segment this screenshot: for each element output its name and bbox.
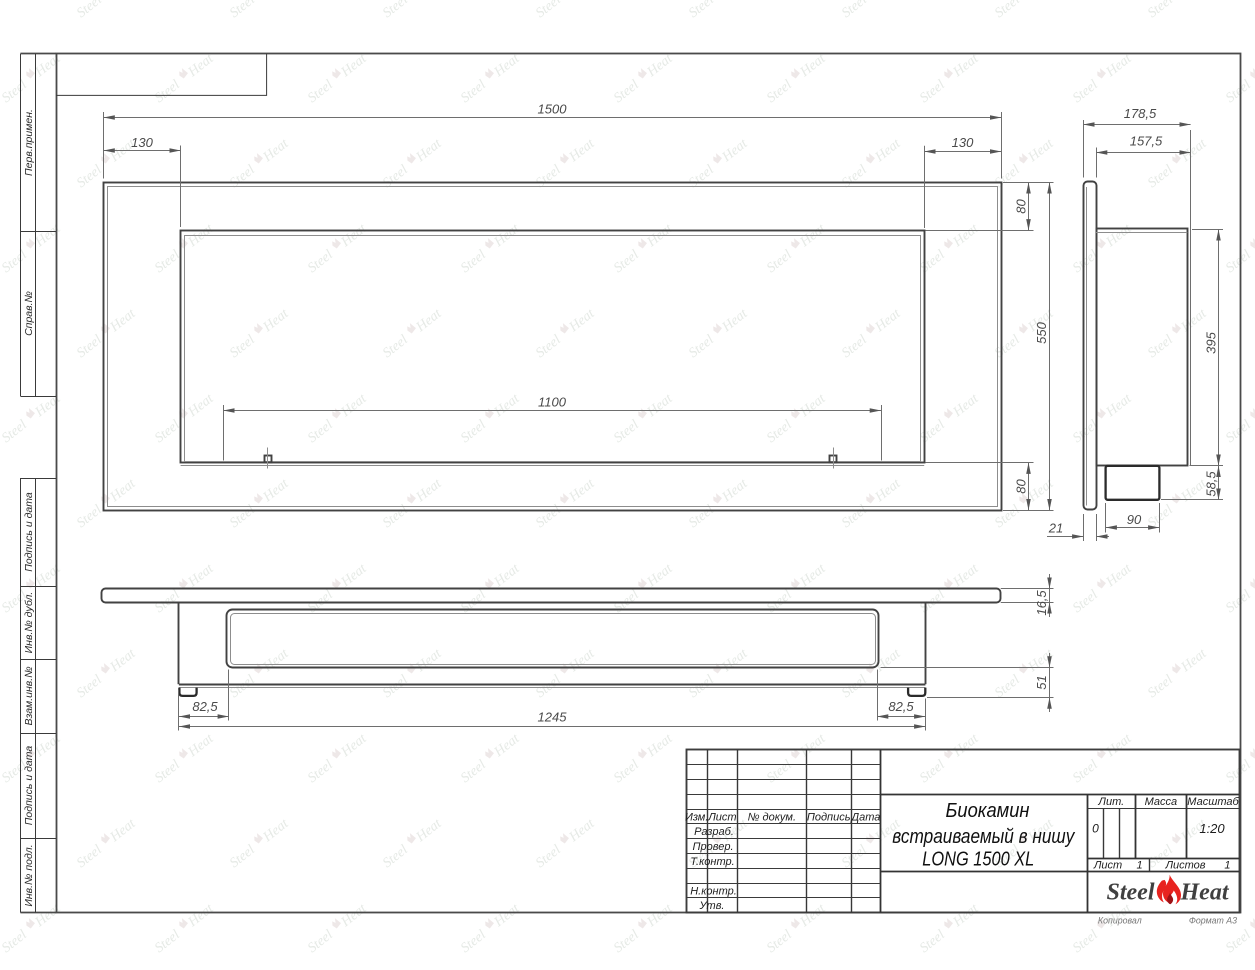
svg-text:21: 21	[1048, 521, 1063, 536]
svg-text:Масса: Масса	[1145, 796, 1178, 808]
svg-text:Масштаб: Масштаб	[1187, 796, 1239, 808]
svg-text:Биокамин: Биокамин	[946, 799, 1030, 822]
svg-text:1245: 1245	[538, 710, 568, 725]
svg-text:Инв.№ подл.: Инв.№ подл.	[23, 844, 35, 906]
svg-text:Копировал: Копировал	[1098, 916, 1142, 926]
svg-text:Изм.: Изм.	[685, 811, 708, 823]
svg-text:Справ.№: Справ.№	[23, 291, 35, 336]
svg-text:Провер.: Провер.	[693, 841, 734, 853]
svg-text:1100: 1100	[538, 394, 567, 409]
svg-text:90: 90	[1127, 512, 1142, 527]
svg-text:16,5: 16,5	[1034, 590, 1049, 616]
svg-text:Подпись и дата: Подпись и дата	[23, 492, 35, 572]
svg-text:Инв.№ дубл.: Инв.№ дубл.	[23, 592, 35, 654]
svg-text:Взам.инв.№: Взам.инв.№	[23, 666, 35, 725]
svg-text:Лист: Лист	[707, 811, 736, 823]
svg-text:550: 550	[1034, 321, 1049, 343]
svg-text:Утв.: Утв.	[699, 900, 725, 912]
svg-text:1500: 1500	[538, 102, 568, 117]
svg-text:Т.контр.: Т.контр.	[690, 856, 734, 868]
svg-text:82,5: 82,5	[888, 699, 914, 714]
svg-text:Лист: Лист	[1093, 860, 1122, 872]
svg-text:1: 1	[1136, 860, 1142, 872]
svg-text:встраиваемый в нишу: встраиваемый в нишу	[892, 825, 1075, 848]
svg-text:130: 130	[131, 135, 153, 150]
svg-text:58,5: 58,5	[1203, 471, 1218, 497]
svg-text:80: 80	[1014, 199, 1029, 214]
svg-text:Лит.: Лит.	[1097, 796, 1124, 808]
svg-text:1: 1	[1224, 860, 1230, 872]
svg-text:Дата: Дата	[849, 811, 880, 823]
svg-text:51: 51	[1034, 675, 1049, 689]
svg-text:Подпись: Подпись	[807, 811, 851, 823]
svg-text:Подпись и дата: Подпись и дата	[23, 746, 35, 826]
svg-text:Steel: Steel	[1107, 880, 1155, 906]
svg-text:Разраб.: Разраб.	[694, 826, 734, 838]
svg-text:№ докум.: № докум.	[748, 811, 796, 823]
svg-text:130: 130	[952, 135, 974, 150]
svg-text:Н.контр.: Н.контр.	[690, 885, 737, 897]
svg-text:LONG 1500 XL: LONG 1500 XL	[922, 847, 1034, 870]
svg-text:Листов: Листов	[1164, 860, 1205, 872]
svg-text:Heat: Heat	[1180, 880, 1230, 906]
svg-text:157,5: 157,5	[1130, 134, 1163, 149]
svg-text:82,5: 82,5	[192, 699, 218, 714]
svg-text:Перв.примен.: Перв.примен.	[23, 109, 35, 176]
svg-text:Формат А3: Формат А3	[1189, 916, 1237, 926]
svg-text:80: 80	[1014, 479, 1029, 494]
svg-text:1:20: 1:20	[1199, 821, 1225, 836]
svg-text:178,5: 178,5	[1124, 106, 1157, 121]
svg-text:395: 395	[1203, 331, 1218, 353]
svg-text:0: 0	[1092, 822, 1099, 836]
